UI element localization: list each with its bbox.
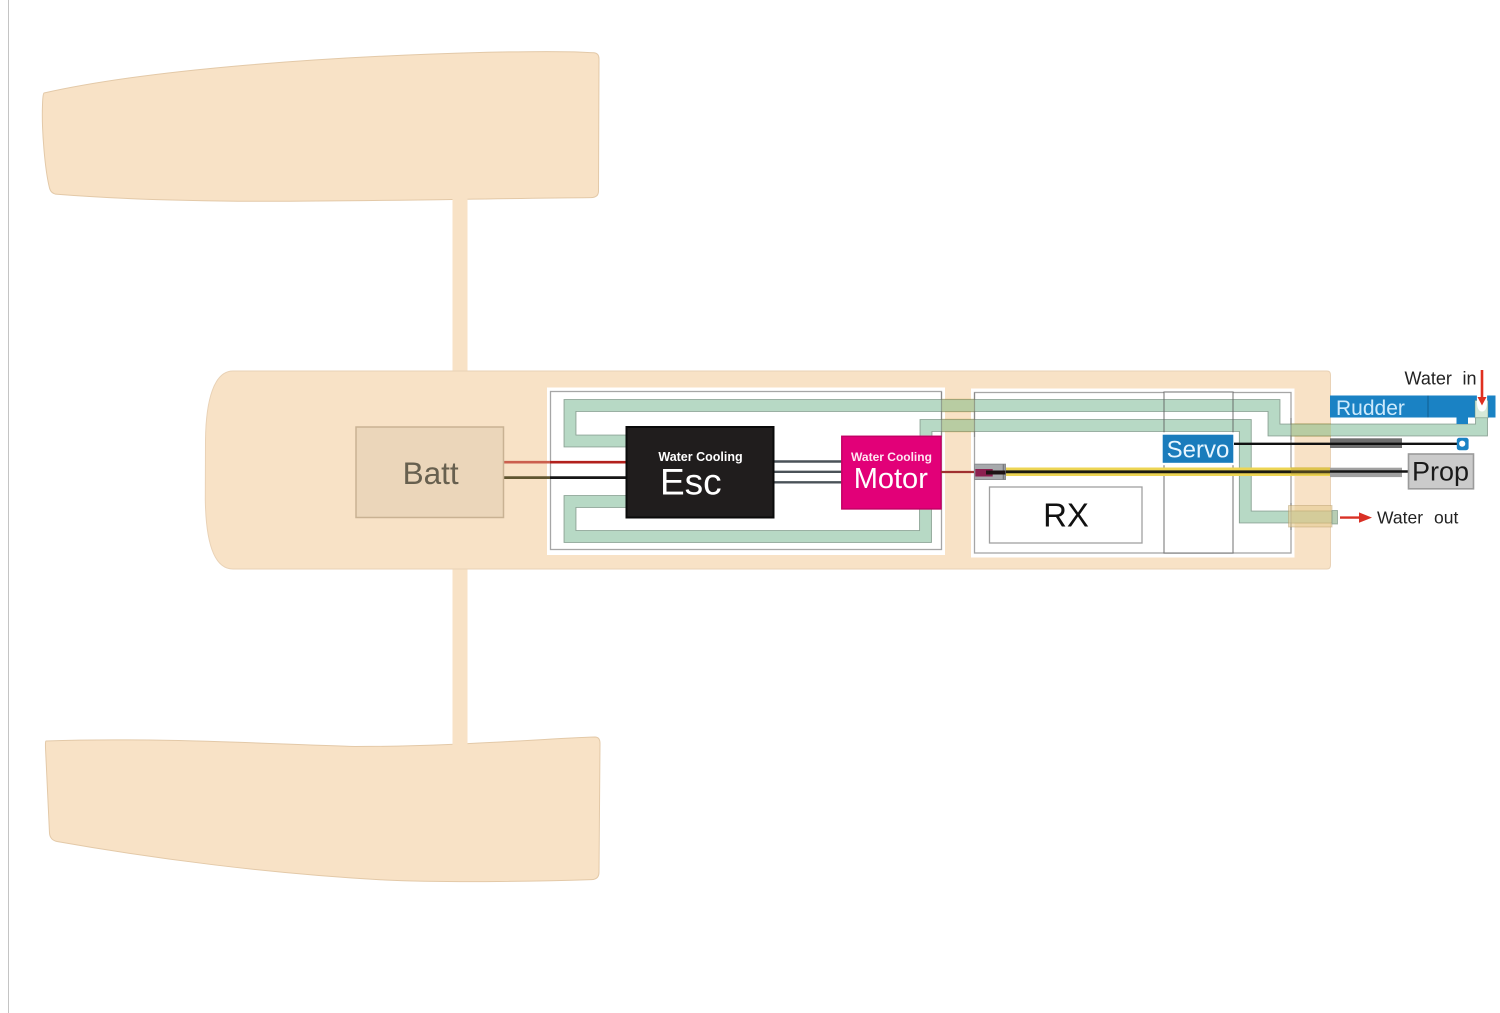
svg-text:Prop: Prop — [1412, 457, 1469, 487]
svg-text:Water: Water — [1405, 369, 1452, 389]
svg-text:RX: RX — [1043, 497, 1089, 534]
svg-text:in: in — [1463, 369, 1477, 389]
svg-text:out: out — [1434, 508, 1458, 528]
svg-text:Rudder: Rudder — [1336, 397, 1405, 420]
svg-text:Motor: Motor — [854, 463, 928, 495]
svg-text:Batt: Batt — [403, 455, 459, 491]
svg-text:Water Cooling: Water Cooling — [851, 450, 932, 464]
svg-text:Esc: Esc — [660, 462, 722, 503]
svg-text:Water: Water — [1377, 508, 1423, 528]
svg-text:Servo: Servo — [1167, 437, 1230, 464]
